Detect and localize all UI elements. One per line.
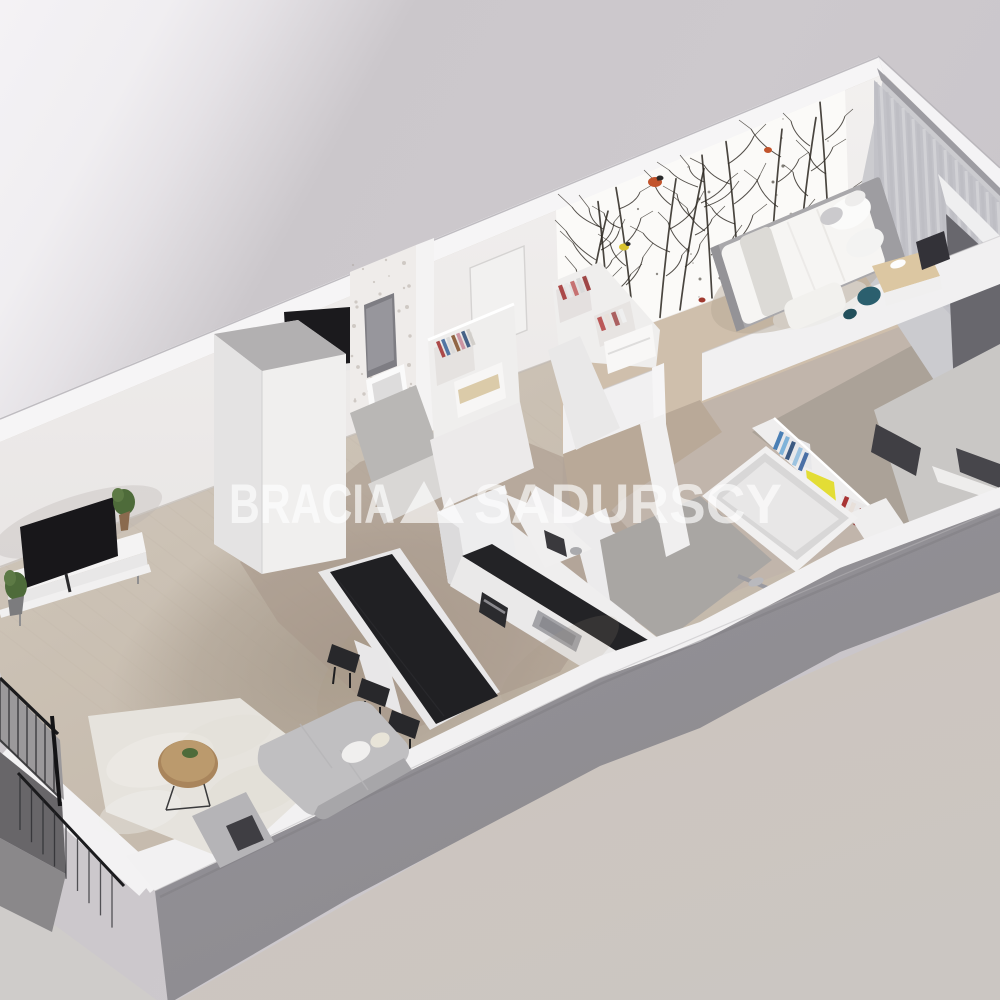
svg-text:BRACIA: BRACIA (229, 472, 395, 535)
svg-text:SADURSCY: SADURSCY (474, 472, 782, 535)
